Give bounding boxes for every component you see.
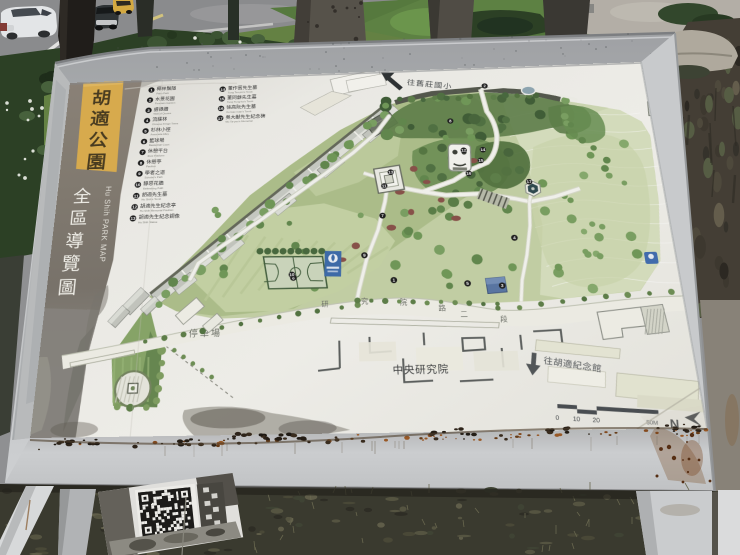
svg-text:全: 全 [72, 187, 92, 207]
svg-text:0: 0 [555, 414, 559, 422]
svg-text:二: 二 [460, 311, 468, 318]
svg-text:12: 12 [461, 148, 466, 152]
svg-text:10: 10 [135, 182, 140, 187]
svg-text:適: 適 [89, 109, 111, 129]
svg-text:中央研究院: 中央研究院 [392, 362, 449, 376]
svg-text:胡: 胡 [91, 88, 112, 108]
svg-text:9: 9 [363, 253, 366, 258]
svg-text:11: 11 [382, 184, 387, 188]
svg-text:15: 15 [478, 159, 483, 163]
svg-text:公: 公 [87, 130, 109, 150]
svg-text:區: 區 [68, 210, 88, 229]
svg-text:20: 20 [592, 417, 600, 426]
svg-text:園: 園 [85, 152, 107, 173]
svg-text:3: 3 [501, 284, 504, 289]
svg-text:16: 16 [466, 172, 471, 176]
svg-text:7: 7 [381, 214, 384, 218]
svg-text:導: 導 [64, 230, 85, 251]
svg-text:7: 7 [141, 150, 144, 155]
svg-text:Palm Path: Palm Path [156, 92, 169, 95]
svg-text:覽: 覽 [61, 254, 82, 275]
svg-text:研: 研 [321, 300, 329, 309]
svg-text:Hu Shih Statue: Hu Shih Statue [138, 220, 158, 224]
svg-text:Refreshing Path: Refreshing Path [143, 187, 164, 191]
svg-text:10: 10 [573, 415, 581, 424]
svg-text:2: 2 [483, 84, 486, 88]
svg-text:8: 8 [449, 119, 452, 123]
svg-text:5: 5 [466, 281, 469, 286]
svg-text:17: 17 [218, 116, 223, 121]
svg-text:13: 13 [388, 170, 393, 174]
svg-text:1: 1 [392, 278, 395, 283]
svg-text:Araucaria Alley: Araucaria Alley [150, 133, 169, 137]
svg-text:17: 17 [526, 180, 532, 184]
svg-text:10: 10 [289, 273, 294, 278]
svg-text:圖: 圖 [57, 278, 78, 298]
svg-text:Wall of Quotes: Wall of Quotes [153, 112, 172, 116]
